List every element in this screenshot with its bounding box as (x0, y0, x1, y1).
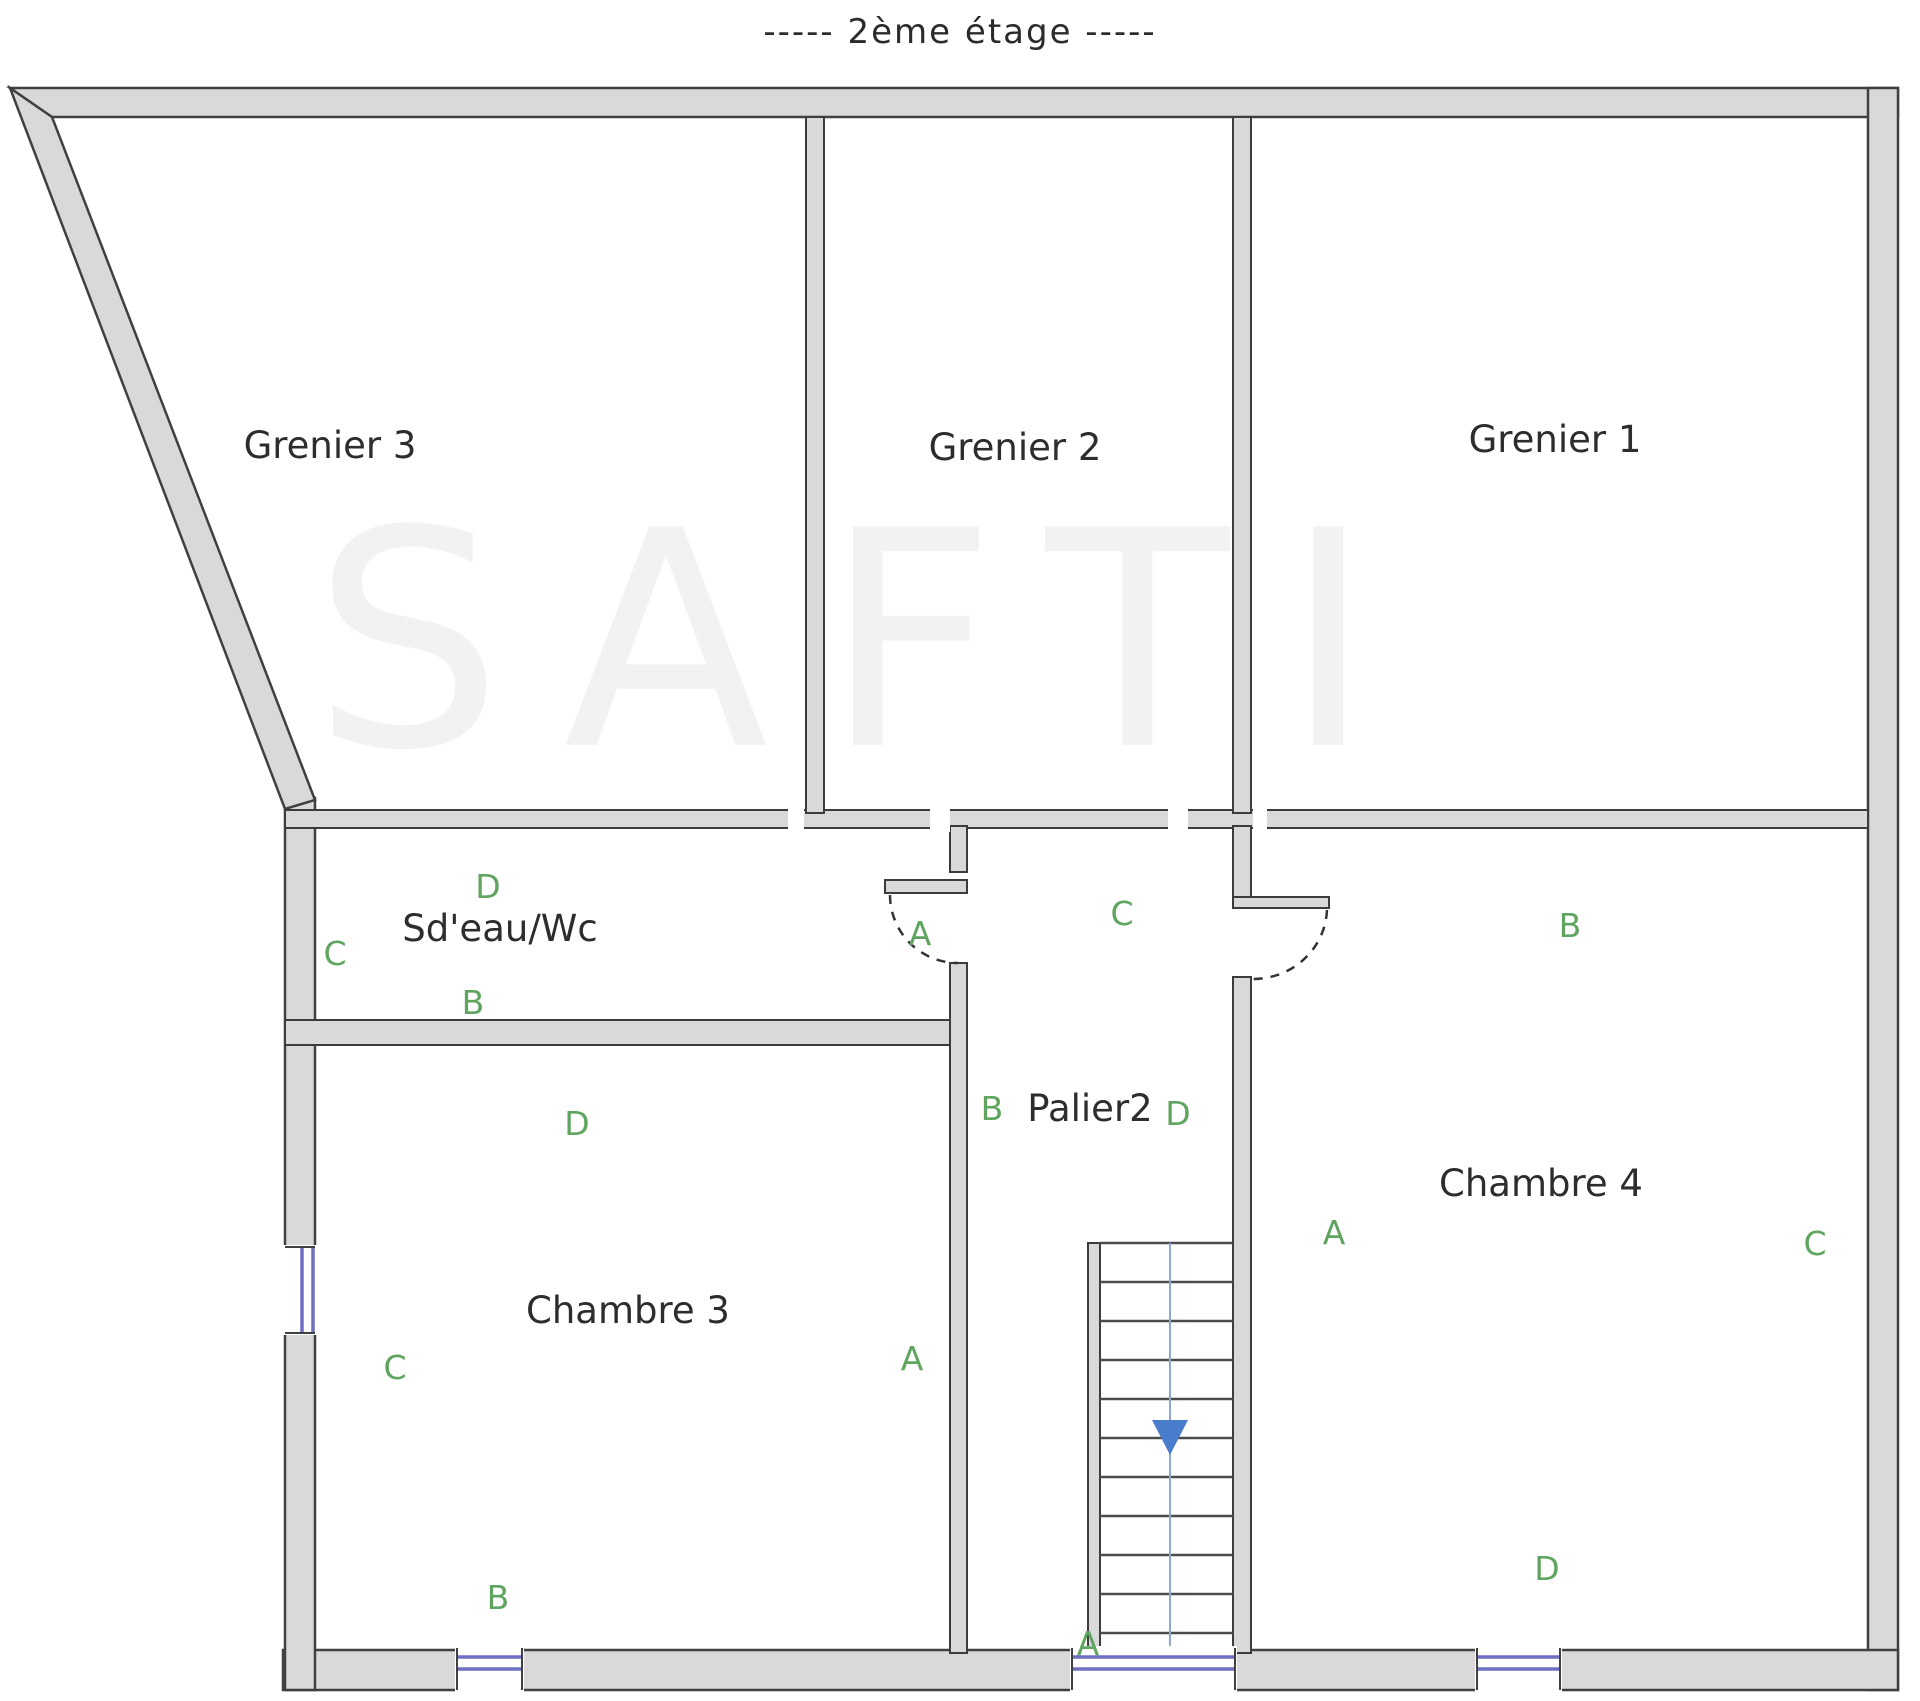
letter-c-palier: C (1110, 894, 1133, 933)
letter-d-palier: D (1165, 1094, 1190, 1133)
letter-d-sdeau: D (475, 867, 500, 906)
room-label-sdeau-wc: Sd'eau/Wc (402, 907, 597, 950)
palier-left-wall-lower (950, 963, 967, 1653)
letter-b-chambre4: B (1559, 906, 1582, 945)
room-label-grenier-2: Grenier 2 (929, 426, 1102, 469)
letter-a-palier: A (1077, 1624, 1100, 1663)
letter-b-chambre3: B (487, 1578, 510, 1617)
wall-grenier3-grenier2 (806, 117, 824, 813)
floor-plan-page: ----- 2ème étage ----- SAFTIGrenier 3Gre… (0, 0, 1920, 1701)
chambre4-door-arc (1253, 910, 1327, 979)
left-wall (285, 798, 315, 1690)
sdeau-door-stub (885, 880, 967, 893)
letter-a-sdeau: A (909, 914, 932, 953)
room-label-chambre-3: Chambre 3 (526, 1289, 730, 1332)
band-opening-3 (1168, 806, 1188, 832)
room-label-palier2: Palier2 (1027, 1087, 1152, 1130)
letter-a-chambre3: A (901, 1339, 924, 1378)
letter-b-sdeau: B (462, 983, 485, 1022)
room-label-grenier-1: Grenier 1 (1469, 418, 1642, 461)
floor-plan-svg: SAFTIGrenier 3Grenier 2Grenier 1Sd'eau/W… (0, 0, 1920, 1701)
sdeau-bottom-wall (285, 1020, 967, 1045)
chambre4-left-wall-lower (1233, 977, 1251, 1653)
stairs-left-wall (1088, 1243, 1100, 1650)
room-label-grenier-3: Grenier 3 (244, 424, 417, 467)
band-opening-4 (1253, 806, 1267, 832)
greniers-bottom-wall (285, 810, 1868, 828)
letter-c-chambre3: C (383, 1348, 406, 1387)
top-wall (10, 88, 1898, 117)
band-opening-1 (788, 806, 804, 832)
band-opening-2 (930, 806, 950, 832)
chambre4-door-stub (1233, 897, 1329, 908)
letter-c-sdeau: C (323, 934, 346, 973)
chambre4-left-wall-upper (1233, 826, 1251, 899)
watermark-text: SAFTI (312, 467, 1427, 816)
letter-d-chambre4: D (1534, 1549, 1559, 1588)
right-wall (1868, 88, 1898, 1690)
letter-d-chambre3: D (564, 1104, 589, 1143)
letter-b-palier: B (981, 1089, 1004, 1128)
room-label-chambre-4: Chambre 4 (1439, 1162, 1643, 1205)
palier-left-wall-upper (950, 826, 967, 872)
wall-grenier2-grenier1 (1233, 117, 1251, 813)
letter-c-chambre4: C (1803, 1224, 1826, 1263)
letter-a-chambre4: A (1323, 1213, 1346, 1252)
